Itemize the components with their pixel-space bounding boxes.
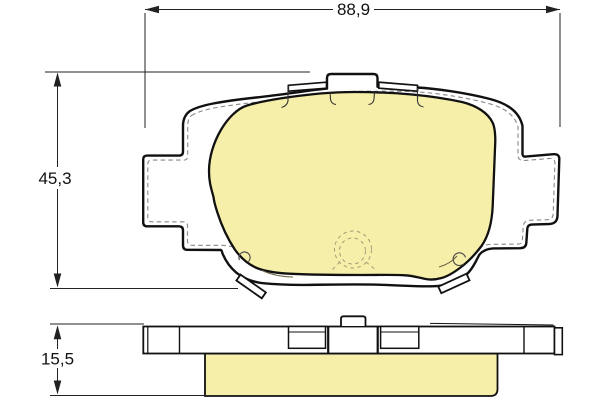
svg-text:15,5: 15,5 [41,350,74,369]
svg-text:88,9: 88,9 [337,0,370,19]
svg-text:45,3: 45,3 [38,169,71,188]
